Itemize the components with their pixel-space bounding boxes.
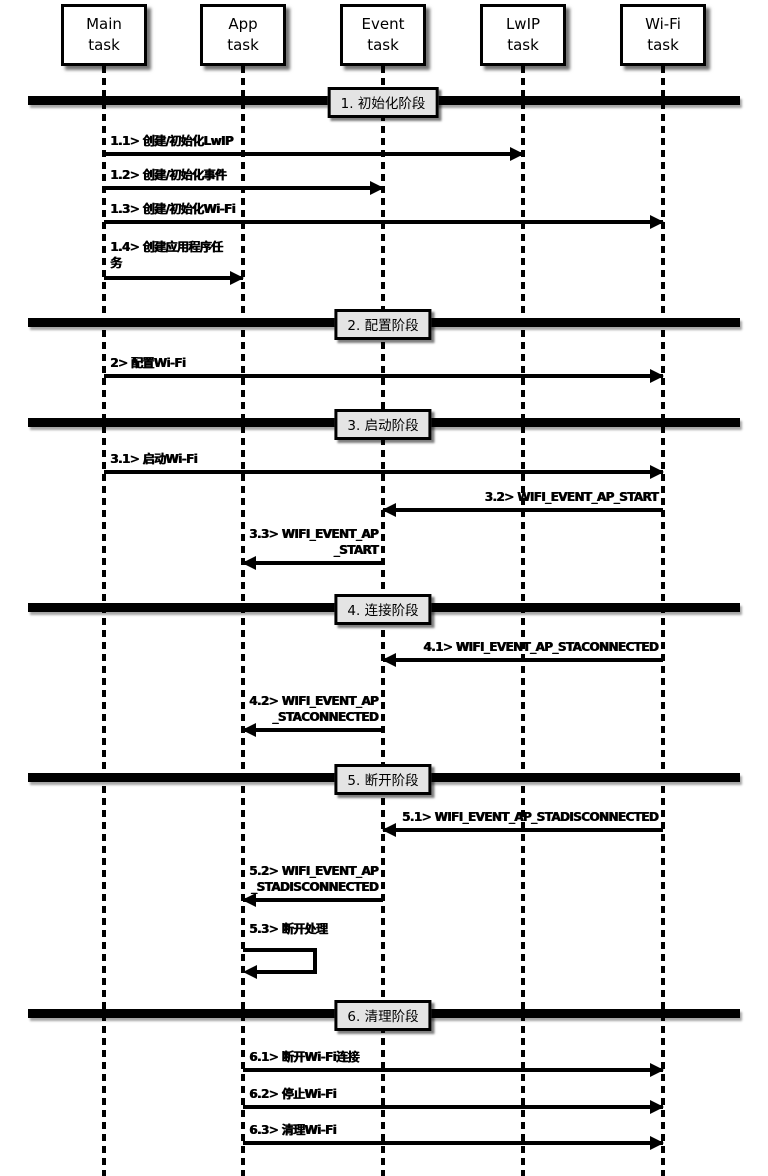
message-label-6-3: 6.3> 清理Wi-Fi	[249, 1123, 336, 1139]
participant-label: task	[88, 35, 120, 56]
message-label-1-1: 1.1> 创建/初始化LwIP	[110, 134, 233, 150]
message-arrow-1-4	[104, 276, 243, 280]
arrowhead-right-icon	[650, 369, 664, 383]
participant-label: task	[647, 35, 679, 56]
message-label-1-3: 1.3> 创建/初始化Wi-Fi	[110, 202, 235, 218]
message-arrow-4-2	[243, 728, 383, 732]
arrowhead-right-icon	[650, 215, 664, 229]
message-label-1-2: 1.2> 创建/初始化事件	[110, 168, 226, 184]
participant-event-task: Event task	[340, 4, 426, 66]
phase-label-2: 2. 配置阶段	[334, 309, 431, 340]
arrowhead-left-icon	[242, 723, 256, 737]
arrowhead-right-icon	[650, 1136, 664, 1150]
message-label-3-3: 3.3> WIFI_EVENT_AP _START	[249, 527, 378, 558]
arrowhead-right-icon	[510, 147, 524, 161]
participant-label: LwIP	[506, 14, 540, 35]
participant-label: task	[507, 35, 539, 56]
participant-lwip-task: LwIP task	[480, 4, 566, 66]
message-arrow-5-1	[383, 828, 663, 832]
arrowhead-right-icon	[650, 1100, 664, 1114]
message-label-5-1: 5.1> WIFI_EVENT_AP_STADISCONNECTED	[402, 810, 658, 826]
message-label-6-1: 6.1> 断开Wi-Fi连接	[249, 1050, 359, 1066]
participant-label: Wi-Fi	[645, 14, 681, 35]
message-label-2: 2> 配置Wi-Fi	[110, 356, 185, 372]
arrowhead-left-icon	[382, 503, 396, 517]
message-arrow-2	[104, 374, 663, 378]
participant-label: task	[367, 35, 399, 56]
arrowhead-right-icon	[650, 1063, 664, 1077]
message-arrow-6-1	[243, 1068, 663, 1072]
phase-label-1: 1. 初始化阶段	[328, 87, 439, 118]
message-arrow-6-3	[243, 1141, 663, 1145]
participant-label: Main	[86, 14, 122, 35]
message-arrow-1-1	[104, 152, 523, 156]
selfloop-bottom-segment	[257, 970, 317, 974]
participant-label: App	[228, 14, 257, 35]
message-arrow-1-3	[104, 220, 663, 224]
arrowhead-left-icon	[242, 556, 256, 570]
arrowhead-right-icon	[230, 271, 244, 285]
arrowhead-left-icon	[382, 653, 396, 667]
message-label-6-2: 6.2> 停止Wi-Fi	[249, 1087, 336, 1103]
message-label-5-3: 5.3> 断开处理	[249, 922, 327, 938]
sequence-diagram: Main task App task Event task LwIP task …	[0, 0, 768, 1176]
arrowhead-right-icon	[370, 181, 384, 195]
message-arrow-4-1	[383, 658, 663, 662]
message-arrow-1-2	[104, 186, 383, 190]
message-label-3-2: 3.2> WIFI_EVENT_AP_START	[484, 490, 658, 506]
phase-label-5: 5. 断开阶段	[334, 764, 431, 795]
arrowhead-left-icon	[242, 893, 256, 907]
message-label-4-2: 4.2> WIFI_EVENT_AP _STACONNECTED	[249, 694, 378, 725]
arrowhead-left-icon	[243, 965, 257, 979]
arrowhead-left-icon	[382, 823, 396, 837]
phase-label-6: 6. 清理阶段	[334, 1000, 431, 1031]
participant-wifi-task: Wi-Fi task	[620, 4, 706, 66]
message-arrow-3-1	[104, 470, 663, 474]
message-arrow-6-2	[243, 1105, 663, 1109]
selfloop-top-segment	[243, 948, 317, 952]
participant-app-task: App task	[200, 4, 286, 66]
message-arrow-3-2	[383, 508, 663, 512]
message-selfloop-5-3	[243, 948, 317, 976]
arrowhead-right-icon	[650, 465, 664, 479]
message-label-1-4: 1.4> 创建应用程序任 务	[110, 240, 222, 271]
message-arrow-5-2	[243, 898, 383, 902]
message-label-5-2: 5.2> WIFI_EVENT_AP _STADISCONNECTED	[249, 864, 378, 895]
message-label-4-1: 4.1> WIFI_EVENT_AP_STACONNECTED	[423, 640, 658, 656]
phase-label-3: 3. 启动阶段	[334, 409, 431, 440]
participant-label: task	[227, 35, 259, 56]
message-arrow-3-3	[243, 561, 383, 565]
participant-main-task: Main task	[61, 4, 147, 66]
phase-label-4: 4. 连接阶段	[334, 594, 431, 625]
message-label-3-1: 3.1> 启动Wi-Fi	[110, 452, 197, 468]
participant-label: Event	[362, 14, 405, 35]
